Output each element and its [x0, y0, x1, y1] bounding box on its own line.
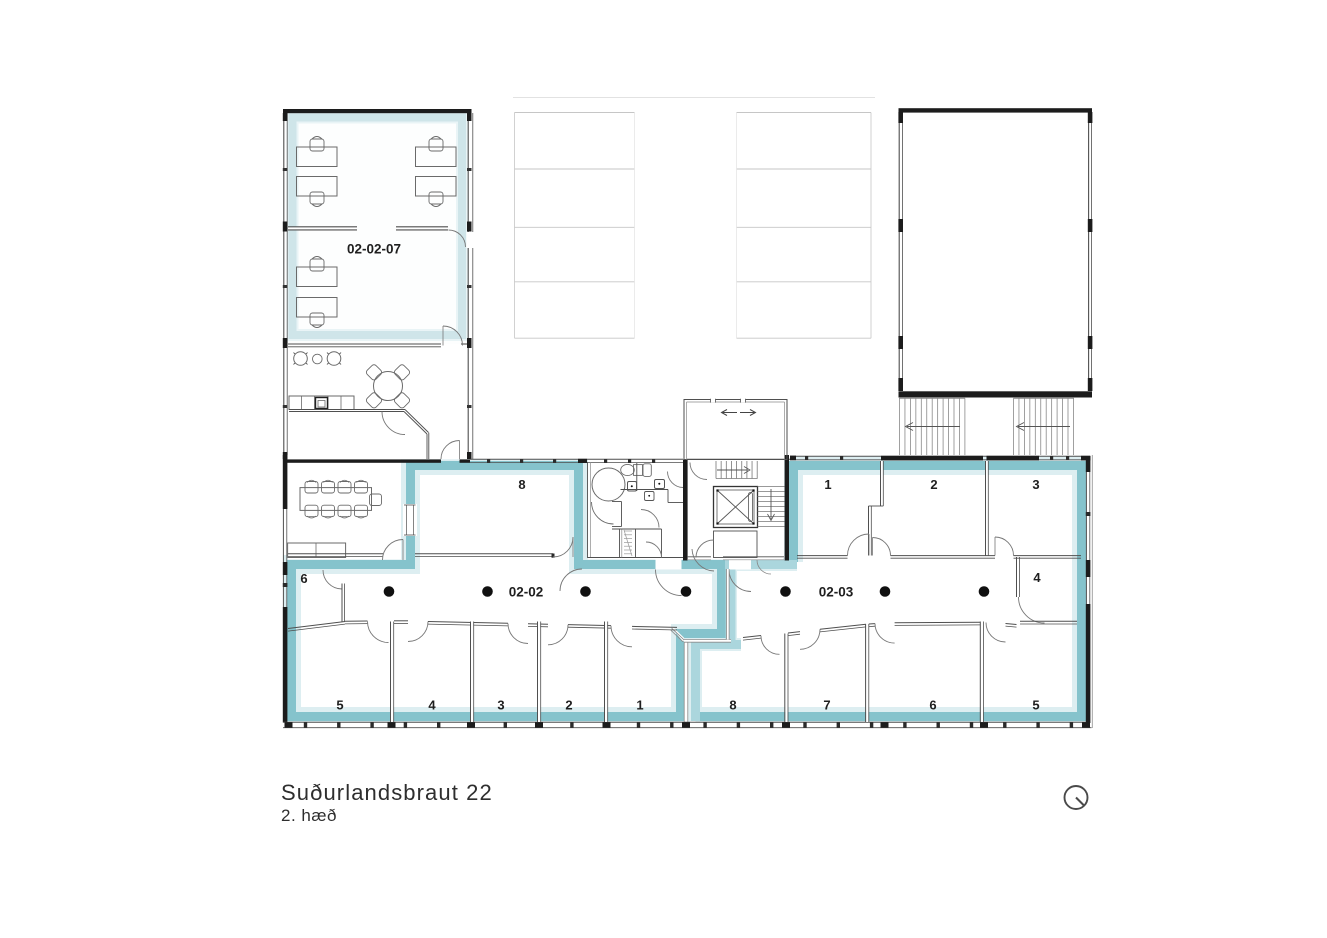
svg-text:3: 3: [1032, 477, 1039, 492]
svg-text:4: 4: [1033, 570, 1041, 585]
svg-text:02-02-07: 02-02-07: [347, 242, 401, 257]
svg-text:6: 6: [929, 698, 936, 713]
svg-text:5: 5: [336, 698, 343, 713]
svg-text:1: 1: [824, 477, 831, 492]
svg-text:2: 2: [565, 698, 572, 713]
svg-text:3: 3: [497, 698, 504, 713]
svg-text:02-02: 02-02: [509, 585, 544, 600]
svg-text:6: 6: [300, 571, 307, 586]
svg-text:2. hæð: 2. hæð: [281, 806, 337, 825]
svg-text:02-03: 02-03: [819, 585, 854, 600]
svg-text:8: 8: [518, 477, 525, 492]
svg-text:8: 8: [729, 698, 736, 713]
svg-text:Suðurlandsbraut 22: Suðurlandsbraut 22: [281, 780, 493, 805]
svg-text:4: 4: [428, 698, 436, 713]
svg-text:2: 2: [930, 477, 937, 492]
svg-text:7: 7: [823, 698, 830, 713]
svg-text:5: 5: [1032, 698, 1039, 713]
svg-text:1: 1: [636, 698, 643, 713]
